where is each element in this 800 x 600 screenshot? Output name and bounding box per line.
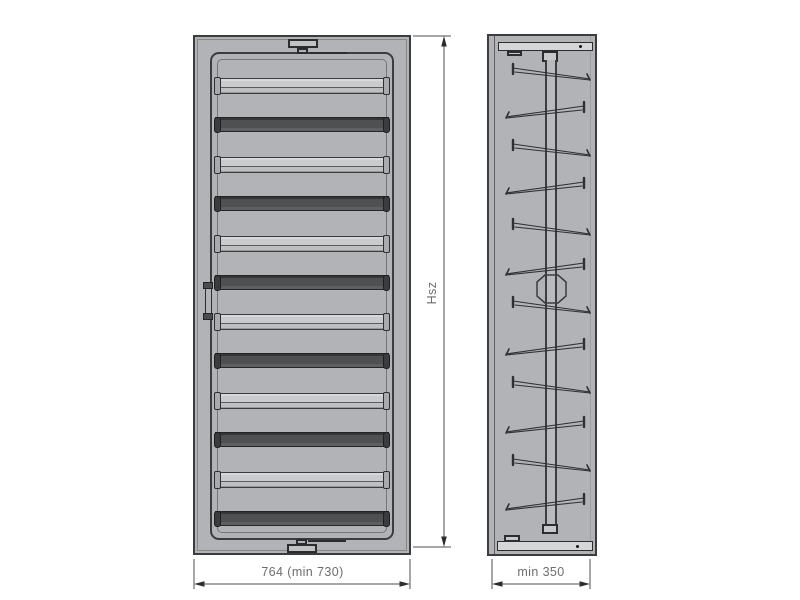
front-slat-dark xyxy=(215,196,389,211)
front-slat-light xyxy=(215,236,389,252)
bottom-bracket-tab xyxy=(296,539,307,545)
support-arm xyxy=(506,339,584,355)
handle-cutout xyxy=(537,275,566,303)
latch-knob-bottom xyxy=(203,313,213,320)
side-view xyxy=(487,34,597,556)
support-arm xyxy=(513,219,590,235)
depth-dimension-label: min 350 xyxy=(492,565,590,579)
support-arm xyxy=(506,102,584,118)
top-bracket-rod xyxy=(309,52,347,54)
arrow-down xyxy=(441,537,447,548)
support-arm xyxy=(513,455,590,471)
height-dimension-label: Hsz xyxy=(425,273,439,313)
front-slat-light xyxy=(215,393,389,409)
technical-drawing: Hsz 764 (min 730) min 350 xyxy=(0,0,800,600)
support-arm xyxy=(513,140,590,156)
side-support-arms xyxy=(487,34,597,556)
arrow-left xyxy=(492,581,503,586)
support-arm xyxy=(506,417,584,433)
width-dimension-label: 764 (min 730) xyxy=(194,565,411,579)
front-slat-light xyxy=(215,157,389,173)
latch-knob-top xyxy=(203,282,213,289)
front-slat-dark xyxy=(215,432,389,447)
support-arm xyxy=(513,377,590,393)
arrow-left xyxy=(194,581,205,586)
front-slat-dark xyxy=(215,511,389,526)
top-bracket-tab xyxy=(297,48,308,54)
support-arm xyxy=(506,259,584,275)
arrow-right xyxy=(400,581,411,586)
arrow-up xyxy=(441,36,447,47)
front-view xyxy=(193,35,411,555)
front-slat-light xyxy=(215,314,389,330)
support-arm xyxy=(513,64,590,80)
front-slat-dark xyxy=(215,117,389,132)
support-arm xyxy=(506,494,584,510)
front-slats xyxy=(215,35,389,555)
support-arm xyxy=(513,297,590,313)
support-arm xyxy=(506,178,584,194)
arrow-right xyxy=(580,581,591,586)
front-slat-light xyxy=(215,472,389,488)
top-bracket-plate xyxy=(288,39,318,48)
front-slat-light xyxy=(215,78,389,94)
front-slat-dark xyxy=(215,353,389,368)
front-slat-dark xyxy=(215,275,389,290)
bottom-bracket-plate xyxy=(287,544,317,553)
bottom-bracket-rod xyxy=(308,540,346,542)
